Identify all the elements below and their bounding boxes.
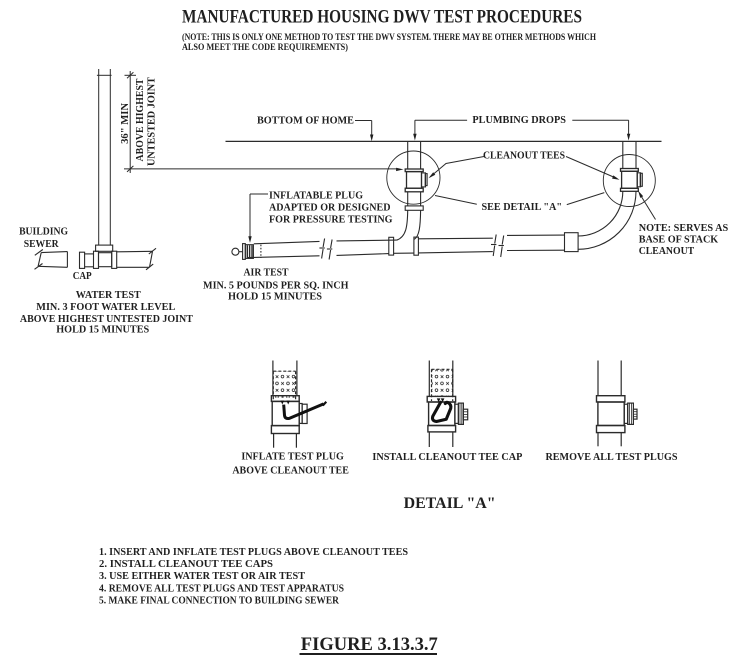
svg-text:(NOTE: THIS IS ONLY ONE METHOD: (NOTE: THIS IS ONLY ONE METHOD TO TEST T…	[182, 32, 596, 42]
svg-text:CLEANOUT: CLEANOUT	[639, 246, 695, 257]
svg-text:SEWER: SEWER	[24, 239, 59, 250]
svg-text:AIR TEST: AIR TEST	[244, 268, 289, 279]
svg-text:ABOVE HIGHEST: ABOVE HIGHEST	[134, 78, 146, 162]
svg-text:WATER TEST: WATER TEST	[76, 290, 141, 301]
svg-text:UNTESTED JOINT: UNTESTED JOINT	[145, 76, 157, 166]
svg-text:ADAPTED OR DESIGNED: ADAPTED OR DESIGNED	[269, 203, 391, 214]
svg-text:ALSO MEET THE CODE REQUIREMENT: ALSO MEET THE CODE REQUIREMENTS)	[182, 42, 348, 52]
svg-text:BASE OF STACK: BASE OF STACK	[639, 235, 719, 246]
svg-text:CLEANOUT TEES: CLEANOUT TEES	[483, 150, 565, 161]
svg-text:INFLATABLE PLUG: INFLATABLE PLUG	[269, 191, 363, 202]
svg-text:ABOVE CLEANOUT TEE: ABOVE CLEANOUT TEE	[232, 466, 349, 477]
svg-text:INSTALL CLEANOUT TEE CAP: INSTALL CLEANOUT TEE CAP	[372, 452, 523, 463]
svg-text:HOLD 15 MINUTES: HOLD 15 MINUTES	[228, 292, 322, 303]
svg-text:SEE DETAIL "A": SEE DETAIL "A"	[482, 202, 563, 213]
svg-text:3. USE EITHER WATER TEST OR AI: 3. USE EITHER WATER TEST OR AIR TEST	[99, 571, 305, 582]
svg-text:DETAIL "A": DETAIL "A"	[404, 495, 496, 512]
svg-text:CAP: CAP	[73, 271, 93, 282]
svg-text:2. INSTALL CLEANOUT TEE CAPS: 2. INSTALL CLEANOUT TEE CAPS	[99, 559, 273, 570]
svg-text:MIN. 5 POUNDS PER SQ. INCH: MIN. 5 POUNDS PER SQ. INCH	[203, 281, 349, 292]
svg-text:FOR PRESSURE TESTING: FOR PRESSURE TESTING	[269, 215, 393, 226]
svg-text:REMOVE ALL TEST PLUGS: REMOVE ALL TEST PLUGS	[546, 452, 678, 463]
svg-text:BUILDING: BUILDING	[19, 227, 68, 238]
svg-text:36" MIN: 36" MIN	[119, 103, 131, 144]
svg-text:BOTTOM OF HOME: BOTTOM OF HOME	[257, 116, 354, 127]
svg-text:1. INSERT AND INFLATE TEST PLU: 1. INSERT AND INFLATE TEST PLUGS ABOVE C…	[99, 547, 408, 558]
svg-text:HOLD 15 MINUTES: HOLD 15 MINUTES	[56, 325, 149, 336]
svg-text:NOTE: SERVES AS: NOTE: SERVES AS	[639, 223, 729, 234]
svg-text:PLUMBING DROPS: PLUMBING DROPS	[472, 115, 566, 126]
svg-text:FIGURE 3.13.3.7: FIGURE 3.13.3.7	[301, 635, 438, 655]
svg-text:INFLATE TEST PLUG: INFLATE TEST PLUG	[241, 451, 344, 462]
svg-text:ABOVE HIGHEST UNTESTED JOINT: ABOVE HIGHEST UNTESTED JOINT	[20, 314, 193, 325]
svg-text:MANUFACTURED HOUSING DWV TEST: MANUFACTURED HOUSING DWV TEST PROCEDURES	[182, 7, 582, 28]
svg-text:4. REMOVE ALL TEST PLUGS AND T: 4. REMOVE ALL TEST PLUGS AND TEST APPARA…	[99, 583, 344, 594]
svg-text:MIN. 3 FOOT WATER LEVEL: MIN. 3 FOOT WATER LEVEL	[36, 302, 175, 313]
svg-text:5. MAKE FINAL CONNECTION TO BU: 5. MAKE FINAL CONNECTION TO BUILDING SEW…	[99, 596, 339, 607]
